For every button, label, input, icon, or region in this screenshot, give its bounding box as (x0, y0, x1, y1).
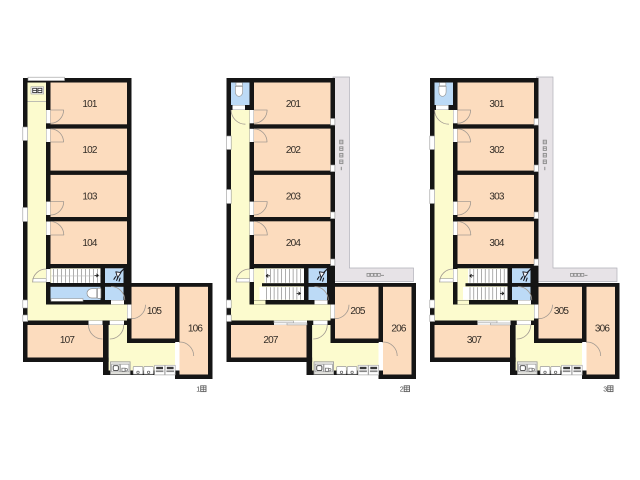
svg-text:101: 101 (82, 99, 98, 110)
svg-text:102: 102 (82, 145, 98, 156)
svg-text:205: 205 (350, 306, 366, 317)
svg-text:201: 201 (286, 99, 302, 110)
svg-text:303: 303 (489, 191, 505, 202)
svg-text:202: 202 (286, 145, 302, 156)
svg-text:104: 104 (82, 238, 98, 249)
svg-text:1: 1 (196, 384, 200, 393)
svg-text:204: 204 (286, 238, 302, 249)
svg-text:103: 103 (82, 191, 98, 202)
svg-text:2: 2 (400, 384, 404, 393)
svg-text:105: 105 (147, 306, 163, 317)
svg-text:207: 207 (263, 335, 279, 346)
svg-text:301: 301 (489, 99, 505, 110)
svg-text:307: 307 (467, 335, 483, 346)
svg-text:106: 106 (188, 323, 204, 334)
svg-text:306: 306 (595, 323, 611, 334)
svg-text:203: 203 (286, 191, 302, 202)
svg-text:304: 304 (489, 238, 505, 249)
svg-text:302: 302 (489, 145, 505, 156)
svg-text:206: 206 (391, 323, 407, 334)
svg-text:305: 305 (554, 306, 570, 317)
svg-text:107: 107 (60, 335, 76, 346)
svg-text:3: 3 (603, 384, 607, 393)
